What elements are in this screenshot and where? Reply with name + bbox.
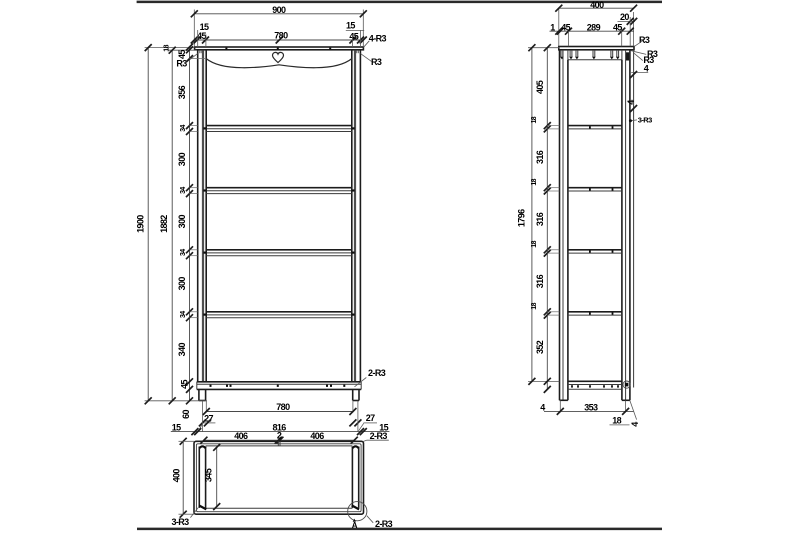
svg-text:405: 405 [535,80,545,94]
svg-text:780: 780 [276,402,290,412]
svg-text:900: 900 [272,5,286,15]
svg-text:1900: 1900 [135,215,145,233]
svg-text:45: 45 [349,32,358,42]
svg-text:18: 18 [531,178,538,185]
svg-text:2: 2 [277,430,282,440]
svg-text:1: 1 [550,23,555,33]
svg-text:34: 34 [180,125,187,132]
svg-text:45: 45 [197,31,206,41]
svg-text:300: 300 [177,214,187,228]
svg-text:316: 316 [535,212,545,226]
svg-text:406: 406 [310,431,324,441]
svg-text:27: 27 [366,413,375,423]
svg-text:300: 300 [177,277,187,291]
svg-text:406: 406 [234,431,248,441]
svg-text:18: 18 [163,44,170,51]
svg-text:1882: 1882 [159,215,169,233]
svg-text:15: 15 [172,422,181,432]
svg-text:4: 4 [626,100,636,105]
svg-text:34: 34 [180,249,187,256]
svg-text:R3: R3 [639,35,650,45]
svg-text:45: 45 [177,50,187,59]
svg-text:345: 345 [203,468,213,482]
svg-text:316: 316 [535,150,545,164]
svg-text:R3: R3 [176,59,187,69]
svg-text:A: A [352,521,358,530]
svg-text:18: 18 [612,416,621,426]
svg-text:4-R3: 4-R3 [369,34,387,44]
svg-text:356: 356 [177,85,187,99]
svg-text:34: 34 [180,311,187,318]
svg-text:15: 15 [346,20,355,30]
svg-text:18: 18 [531,240,538,247]
svg-text:18: 18 [531,116,538,123]
svg-text:780: 780 [274,31,288,41]
svg-text:18: 18 [531,302,538,309]
svg-text:20: 20 [620,12,629,22]
svg-text:3-R3: 3-R3 [171,517,189,527]
svg-text:3-R3: 3-R3 [638,116,652,125]
svg-text:2-R3: 2-R3 [370,431,388,441]
svg-text:4: 4 [630,422,640,427]
svg-text:340: 340 [177,342,187,356]
svg-text:300: 300 [177,152,187,166]
svg-text:34: 34 [180,187,187,194]
svg-text:352: 352 [535,340,545,354]
svg-text:R3: R3 [371,57,382,67]
svg-text:316: 316 [535,274,545,288]
svg-text:4: 4 [540,403,545,413]
svg-text:45: 45 [561,23,570,33]
svg-text:1796: 1796 [516,209,526,227]
svg-text:353: 353 [584,403,598,413]
svg-text:289: 289 [587,23,601,33]
svg-text:45: 45 [180,380,190,389]
svg-text:2-R3: 2-R3 [368,368,386,378]
svg-text:2-R3: 2-R3 [375,519,393,529]
svg-text:400: 400 [171,469,181,483]
svg-text:45: 45 [613,23,622,33]
svg-text:60: 60 [181,410,191,419]
svg-text:400: 400 [590,0,604,10]
